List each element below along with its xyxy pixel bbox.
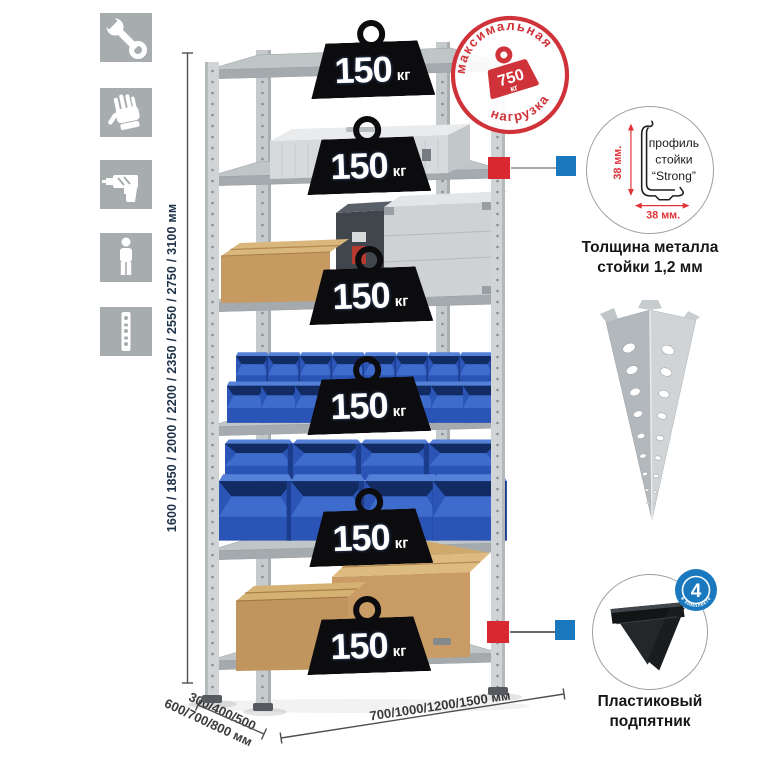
- shelf-load-badge-2: 150кг: [305, 114, 432, 195]
- kit-count-badge: 4 в комплекте: [674, 568, 718, 612]
- callout-marker-red-top: [488, 157, 510, 179]
- shelf-load-badge-1: 150кг: [309, 18, 436, 99]
- shelf-load-badge-6: 150кг: [305, 594, 432, 675]
- shelf-load-badge-5: 150кг: [307, 486, 434, 567]
- shelf-load-badge-4: 150кг: [305, 354, 432, 435]
- callout-marker-red-bottom: [487, 621, 509, 643]
- svg-text:4: 4: [691, 581, 702, 602]
- max-load-stamp: максимальная нагрузка 750 кг: [444, 9, 576, 141]
- callout-marker-blue-top: [556, 156, 576, 176]
- shelf-load-badge-3: 150кг: [307, 244, 434, 325]
- callout-marker-blue-bottom: [555, 620, 575, 640]
- infographic-canvas: 150кг 150кг 150кг 150кг 150кг 150кг макс…: [0, 0, 765, 765]
